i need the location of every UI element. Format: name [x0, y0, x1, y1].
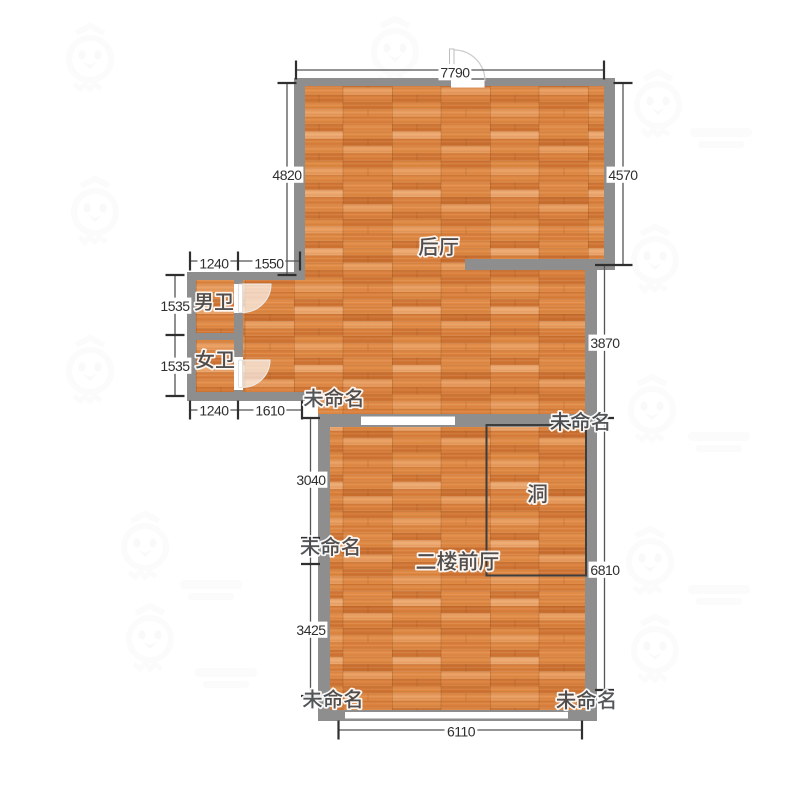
svg-text:6110: 6110 [447, 724, 476, 740]
svg-text:3425: 3425 [296, 622, 326, 638]
svg-text:1240: 1240 [199, 256, 229, 272]
svg-text:1535: 1535 [160, 298, 190, 314]
svg-text:1550: 1550 [254, 256, 284, 272]
svg-text:3870: 3870 [590, 335, 620, 351]
svg-text:7790: 7790 [440, 65, 470, 81]
svg-text:4820: 4820 [272, 167, 302, 183]
svg-text:3040: 3040 [296, 472, 326, 488]
svg-text:1610: 1610 [255, 403, 285, 419]
svg-text:1535: 1535 [160, 358, 190, 374]
svg-text:1240: 1240 [199, 403, 229, 419]
svg-text:4570: 4570 [608, 167, 638, 183]
svg-text:6810: 6810 [590, 562, 620, 578]
